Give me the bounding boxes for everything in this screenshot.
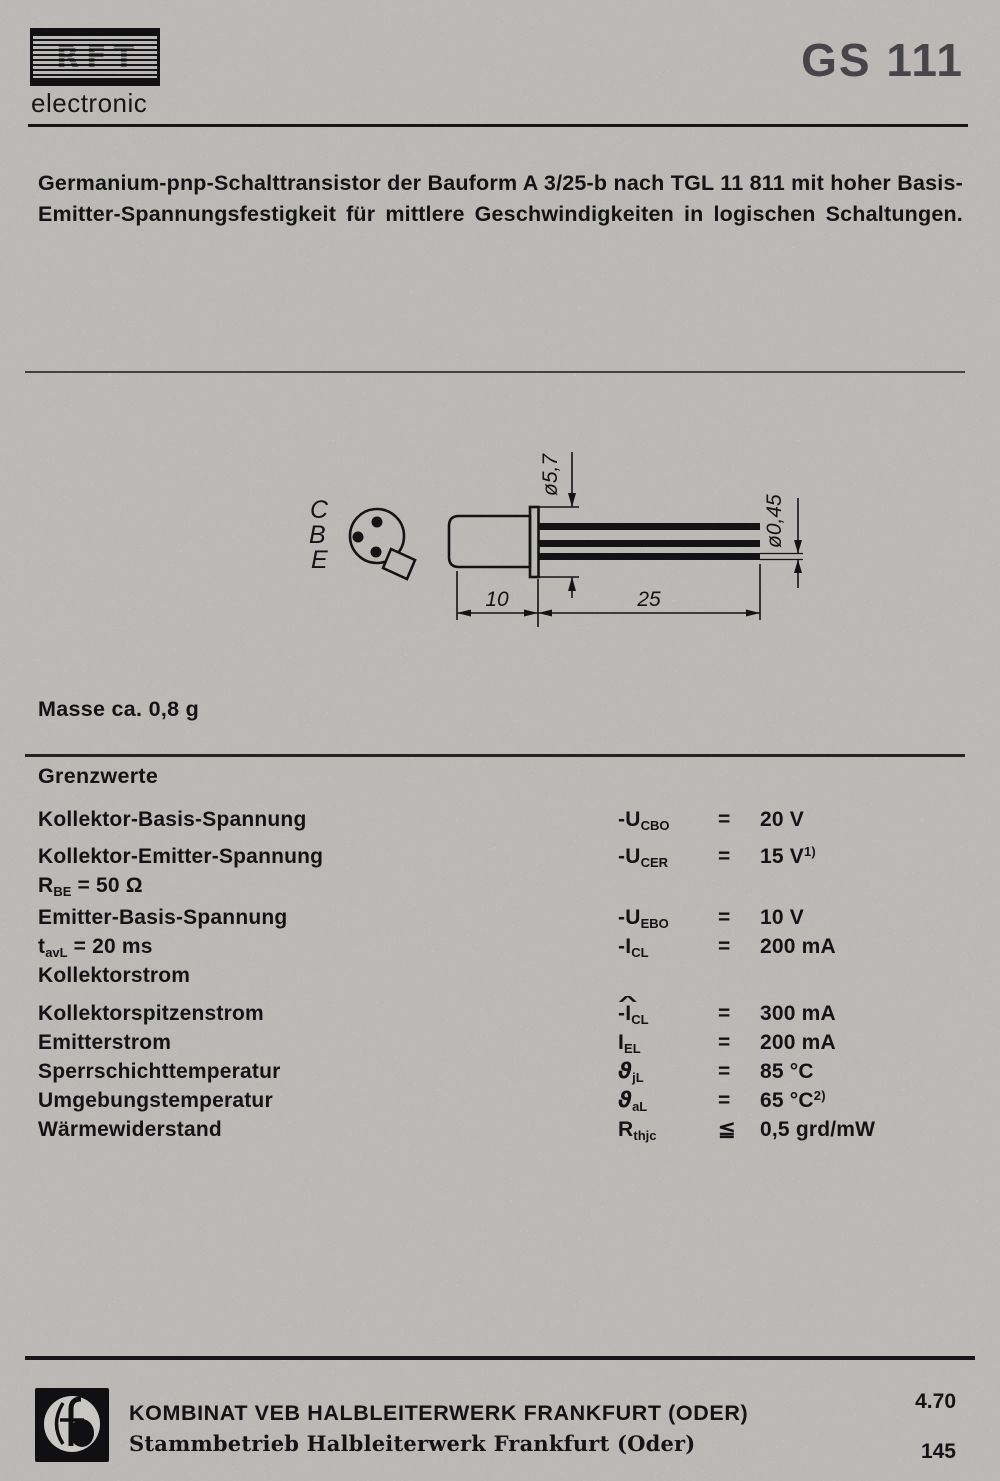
table-row: Emitter-Basis-Spannung -UEBO = 10 V xyxy=(38,904,963,933)
row-value: 20 V xyxy=(760,806,963,835)
row-value: 10 V xyxy=(760,904,963,933)
package-diagram: C B E ø5 xyxy=(280,430,820,645)
row-symbol: -I^CL xyxy=(618,1000,718,1029)
pin-view xyxy=(350,509,415,579)
row-label: Sperrschichttemperatur xyxy=(38,1058,618,1087)
rft-logo-stripes-overlay xyxy=(33,36,157,78)
brand-tagline: electronic xyxy=(31,88,147,119)
row-relation: = xyxy=(718,843,760,872)
table-row: tavL = 20 ms -ICL = 200 mA xyxy=(38,933,963,962)
row-symbol: -ICL xyxy=(618,933,718,962)
row-value: 0,5 grd/mW xyxy=(760,1116,963,1145)
row-value: 85 °C xyxy=(760,1058,963,1087)
row-label: tavL = 20 ms xyxy=(38,933,618,962)
row-relation: ≦ xyxy=(718,1116,760,1145)
row-symbol xyxy=(618,872,718,901)
table-row: Umgebungstemperatur ϑaL = 65 °C2) xyxy=(38,1087,963,1116)
row-symbol xyxy=(618,962,718,989)
peak-hat: ^ xyxy=(618,990,638,1013)
dim-body-diameter-label: ø5,7 xyxy=(539,453,562,496)
row-symbol: IEL xyxy=(618,1029,718,1058)
table-row: Wärmewiderstand Rthjc ≦ 0,5 grd/mW xyxy=(38,1116,963,1145)
row-label: Emitter-Basis-Spannung xyxy=(38,904,618,933)
row-label: Kollektor-Basis-Spannung xyxy=(38,806,618,835)
row-value xyxy=(760,962,963,989)
row-label: Kollektorstrom xyxy=(38,962,618,989)
row-relation xyxy=(718,962,760,989)
row-relation: = xyxy=(718,806,760,835)
header-rule xyxy=(28,124,968,127)
lead-extension-lines xyxy=(760,554,803,560)
row-relation: = xyxy=(718,1029,760,1058)
row-value: 300 mA xyxy=(760,1000,963,1029)
row-relation: = xyxy=(718,904,760,933)
page-number: 145 xyxy=(921,1440,956,1464)
table-row: Kollektor-Basis-Spannung -UCBO = 20 V xyxy=(38,806,963,835)
table-row: RBE = 50 Ω xyxy=(38,872,963,901)
product-code: GS 111 xyxy=(801,33,964,87)
limits-rule xyxy=(25,754,965,757)
row-label: RBE = 50 Ω xyxy=(38,872,618,901)
company-block: KOMBINAT VEB HALBLEITERWERK FRANKFURT (O… xyxy=(129,1398,748,1459)
pin-label-c: C xyxy=(310,496,329,524)
row-relation: = xyxy=(718,1000,760,1029)
row-symbol: ϑaL xyxy=(618,1087,718,1116)
dim-lead-diameter-label: ø0,45 xyxy=(763,494,786,548)
dim-lead-diameter: ø0,45 xyxy=(763,494,802,588)
mass-note: Masse ca. 0,8 g xyxy=(38,697,199,722)
row-relation xyxy=(718,872,760,901)
row-value: 200 mA xyxy=(760,933,963,962)
company-name: KOMBINAT VEB HALBLEITERWERK FRANKFURT (O… xyxy=(129,1398,748,1428)
hfo-logo xyxy=(35,1388,109,1462)
mid-rule xyxy=(25,371,965,373)
row-value: 200 mA xyxy=(760,1029,963,1058)
row-label: Kollektor-Emitter-Spannung xyxy=(38,843,618,872)
row-symbol: -UCBO xyxy=(618,806,718,835)
row-relation: = xyxy=(718,1087,760,1116)
row-label: Wärmewiderstand xyxy=(38,1116,618,1145)
index-tab xyxy=(383,549,415,579)
dim-lengths: 10 25 xyxy=(457,564,760,627)
row-symbol: -UEBO xyxy=(618,904,718,933)
row-label: Kollektorspitzenstrom xyxy=(38,1000,618,1029)
transistor-body xyxy=(449,516,530,567)
dim-lead-length-label: 25 xyxy=(636,588,661,611)
row-value: 15 V1) xyxy=(760,843,963,872)
table-row: Kollektorstrom xyxy=(38,962,963,989)
leads xyxy=(539,523,761,560)
rft-logo: RFT xyxy=(30,28,160,86)
row-label: Umgebungstemperatur xyxy=(38,1087,618,1116)
table-row: Kollektor-Emitter-Spannung -UCER = 15 V1… xyxy=(38,843,963,872)
row-symbol: Rthjc xyxy=(618,1116,718,1145)
table-row: Kollektorspitzenstrom -I^CL = 300 mA xyxy=(38,1000,963,1029)
table-row: Sperrschichttemperatur ϑjL = 85 °C xyxy=(38,1058,963,1087)
flange xyxy=(530,507,539,577)
row-value: 65 °C2) xyxy=(760,1087,963,1116)
row-relation: = xyxy=(718,1058,760,1087)
limits-heading: Grenzwerte xyxy=(38,764,158,789)
company-subsidiary: Stammbetrieb Halbleiterwerk Frankfurt (O… xyxy=(129,1428,748,1459)
date-code: 4.70 xyxy=(915,1390,956,1414)
side-view xyxy=(449,507,539,577)
datasheet-page: RFT electronic GS 111 Germanium-pnp-Scha… xyxy=(0,0,1000,1481)
dim-body-length-label: 10 xyxy=(485,588,509,611)
footer-rule xyxy=(25,1356,975,1360)
description-paragraph: Germanium-pnp-Schalttransistor der Baufo… xyxy=(38,168,963,230)
row-symbol: ϑjL xyxy=(618,1058,718,1087)
row-symbol: -UCER xyxy=(618,843,718,872)
table-row: Emitterstrom IEL = 200 mA xyxy=(38,1029,963,1058)
row-label: Emitterstrom xyxy=(38,1029,618,1058)
pin-label-b: B xyxy=(309,521,326,549)
row-relation: = xyxy=(718,933,760,962)
limits-table: Kollektor-Basis-Spannung -UCBO = 20 V Ko… xyxy=(38,806,963,1145)
row-value xyxy=(760,872,963,901)
pin-label-e: E xyxy=(311,546,328,574)
